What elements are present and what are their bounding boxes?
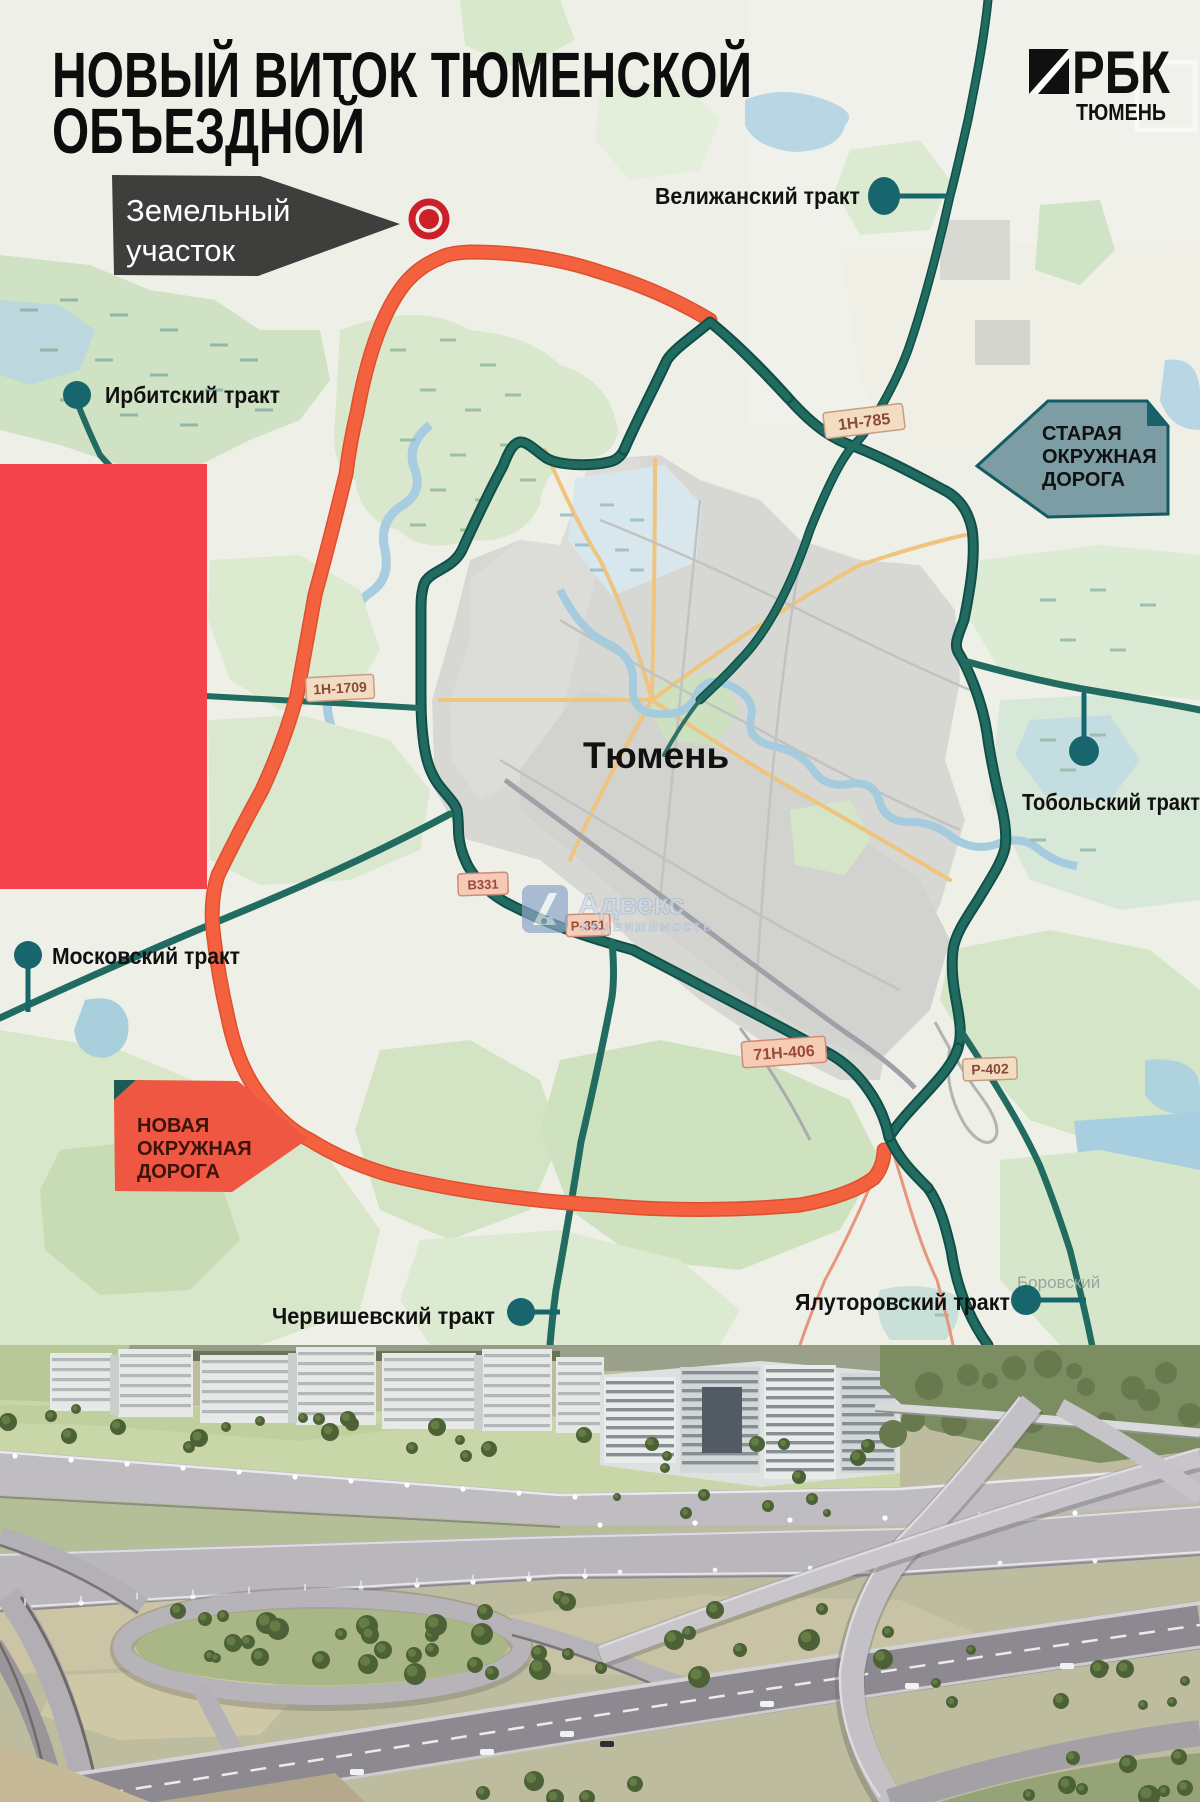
svg-text:ОКРУЖНАЯ: ОКРУЖНАЯ <box>1042 446 1157 468</box>
svg-text:ТЮМЕНЬ: ТЮМЕНЬ <box>1076 99 1166 125</box>
svg-text:Ялуторовский тракт: Ялуторовский тракт <box>795 1289 1010 1315</box>
svg-text:РБК: РБК <box>1072 39 1170 106</box>
svg-text:НОВАЯ: НОВАЯ <box>137 1115 209 1137</box>
svg-text:Тюмень: Тюмень <box>583 735 729 776</box>
svg-text:СТАРАЯ: СТАРАЯ <box>1042 423 1122 445</box>
svg-text:Адвекс: Адвекс <box>578 888 685 921</box>
svg-text:В331: В331 <box>467 876 499 892</box>
svg-text:участок: участок <box>126 233 235 268</box>
svg-text:ДОРОГА: ДОРОГА <box>1042 469 1125 491</box>
svg-text:Московский тракт: Московский тракт <box>52 943 240 969</box>
svg-text:ОБЪЕЗДНОЙ: ОБЪЕЗДНОЙ <box>52 94 365 167</box>
svg-text:Велижанский тракт: Велижанский тракт <box>655 183 860 209</box>
svg-text:ОКРУЖНАЯ: ОКРУЖНАЯ <box>137 1138 252 1160</box>
svg-text:Земельный: Земельный <box>126 193 290 228</box>
svg-text:Ирбитский тракт: Ирбитский тракт <box>105 382 280 408</box>
svg-text:ДОРОГА: ДОРОГА <box>137 1161 220 1183</box>
svg-text:недвижимость: недвижимость <box>580 918 714 935</box>
svg-text:Тобольский тракт: Тобольский тракт <box>1022 789 1200 815</box>
svg-text:Р-402: Р-402 <box>971 1060 1009 1077</box>
svg-text:1Н-1709: 1Н-1709 <box>313 679 368 698</box>
svg-text:Червишевский тракт: Червишевский тракт <box>272 1303 495 1329</box>
